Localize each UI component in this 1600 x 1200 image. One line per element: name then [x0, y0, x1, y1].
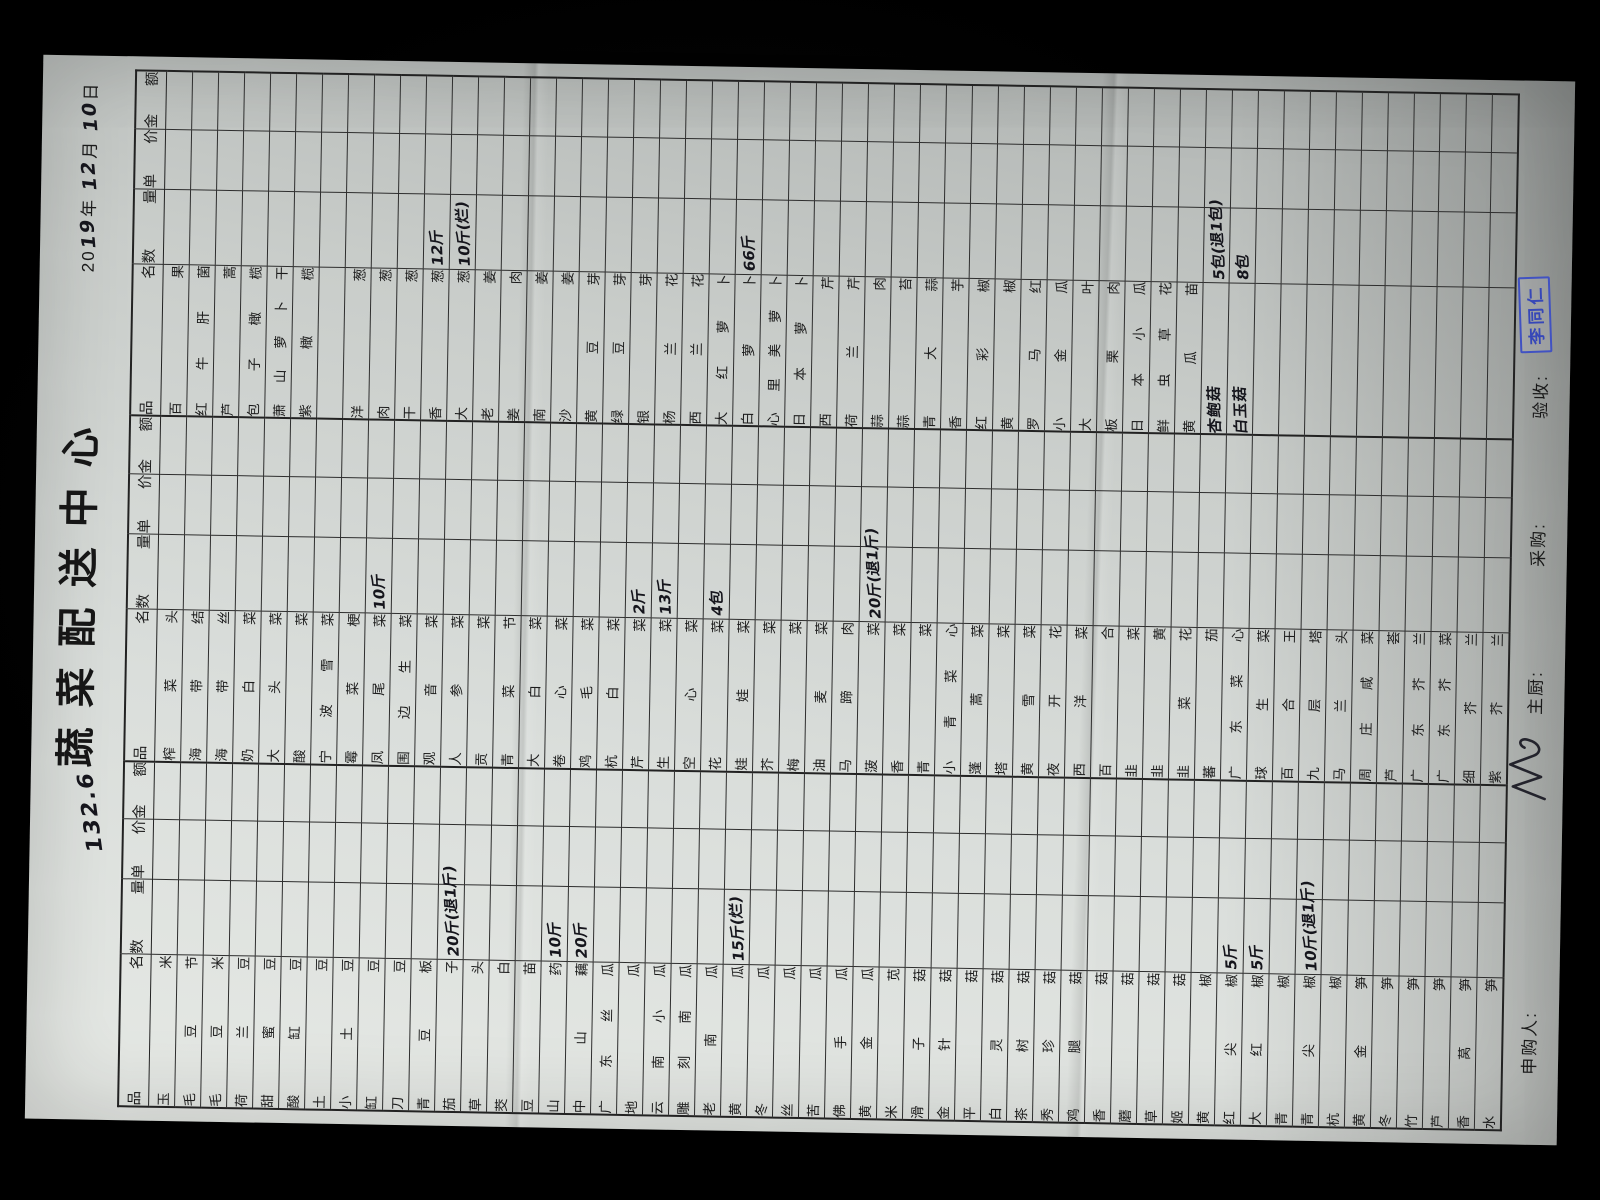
- item-name-cell: 球生菜: [1246, 628, 1275, 781]
- amount-cell: [492, 767, 519, 825]
- unit-price-cell: [776, 830, 803, 890]
- quantity-cell: [209, 535, 236, 611]
- amount-cell: [394, 420, 421, 478]
- quantity-cell: [827, 891, 854, 967]
- item-name-cell: 芦荟: [1376, 631, 1405, 784]
- amount-cell: [348, 74, 375, 133]
- amount-cell: [400, 75, 427, 134]
- handwritten-quantity: 20斤: [569, 921, 592, 960]
- item-name-cell: 贡菜: [467, 615, 496, 768]
- item-name-cell: 蓬蒿菜: [960, 623, 989, 776]
- item-name-cell: 蒜苔: [888, 277, 917, 430]
- quantity-cell: [1139, 897, 1166, 973]
- unit-price-cell: [912, 487, 939, 547]
- amount-cell: [258, 763, 285, 821]
- quantity-cell: [1061, 895, 1088, 971]
- quantity-cell: [1431, 557, 1458, 633]
- item-name-cell: 萧山萝卜干: [265, 266, 294, 419]
- unit-price-cell: [1048, 144, 1075, 204]
- quantity-cell: 10斤: [541, 886, 568, 962]
- amount-cell: [556, 78, 583, 137]
- unit-price-cell: [496, 480, 523, 540]
- item-name-cell: 佛手瓜: [824, 966, 853, 1119]
- item-name-cell: 香菜: [882, 622, 911, 775]
- handwritten-quantity: 10斤(烂): [451, 200, 475, 268]
- item-name-cell: 海带结: [181, 610, 210, 763]
- amount-cell: [706, 426, 733, 484]
- unit-price-cell: [1068, 490, 1095, 550]
- quantity-cell: [553, 196, 580, 272]
- quantity-cell: [729, 544, 756, 620]
- unit-price-cell: [704, 484, 731, 544]
- quantity-cell: [1451, 902, 1478, 978]
- quantity-cell: [1399, 901, 1426, 977]
- item-name-cell: 茶树菇: [1006, 970, 1035, 1123]
- form-date: 2019年 12月 10日: [74, 81, 102, 272]
- handwritten-quantity: 2斤: [627, 587, 649, 615]
- item-name-cell: 冬瓜: [746, 965, 775, 1118]
- unit-price-cell: [555, 136, 582, 196]
- item-name-cell: 黄金瓜: [850, 967, 879, 1120]
- amount-cell: [1101, 87, 1128, 146]
- amount-cell: [1479, 785, 1507, 844]
- item-name-cell: 鸡毛菜: [571, 617, 600, 770]
- amount-cell: [1115, 778, 1142, 836]
- item-name-cell: 小青菜心: [934, 623, 963, 776]
- item-name-cell: 甜蜜豆: [253, 956, 282, 1109]
- item-name-cell: 蕃茄: [1194, 627, 1223, 780]
- amount-cell: [570, 769, 597, 827]
- unit-price-cell: [659, 138, 686, 198]
- amount-cell: [725, 771, 752, 829]
- quantity-cell: [593, 887, 620, 963]
- unit-price-cell: [581, 136, 608, 196]
- item-name-cell: 肉葱: [369, 268, 398, 421]
- amount-cell: [374, 74, 401, 133]
- item-name-cell: 细芥兰: [1454, 632, 1483, 785]
- item-name-cell: 荷兰豆: [227, 956, 256, 1109]
- quantity-cell: [183, 535, 210, 611]
- quantity-cell: [1385, 210, 1412, 286]
- unit-price-cell: [373, 133, 400, 193]
- amount-cell: [596, 769, 623, 827]
- quantity-cell: [1425, 902, 1452, 978]
- item-name-cell: 紫橄榄: [291, 266, 320, 419]
- item-name-cell: 大葱: [447, 269, 476, 422]
- unit-price-cell: [1386, 150, 1413, 210]
- amount-cell: [310, 764, 337, 822]
- quantity-cell: [1379, 556, 1406, 632]
- quantity-cell: 10斤(烂): [449, 194, 476, 270]
- unit-price-cell: [880, 832, 907, 892]
- quantity-cell: [1353, 555, 1380, 631]
- item-name-cell: 红牛肝菌: [187, 265, 216, 418]
- item-name-cell: 香菇: [1084, 971, 1113, 1124]
- unit-price-cell: [1178, 147, 1205, 207]
- quantity-cell: [983, 894, 1010, 970]
- item-name-cell: 马蹄肉: [830, 621, 859, 774]
- item-name-cell: [1252, 283, 1281, 436]
- unit-price-cell: [367, 478, 394, 538]
- date-year-unit: 年: [80, 198, 99, 217]
- amount-cell: [1401, 783, 1428, 841]
- unit-price-cell: [1074, 145, 1101, 205]
- amount-cell: [1049, 86, 1076, 145]
- quantity-cell: [671, 889, 698, 965]
- quantity-cell: [1223, 553, 1250, 629]
- unit-price-cell: [412, 824, 439, 884]
- unit-price-cell: [710, 139, 737, 199]
- amount-cell: [1069, 432, 1096, 490]
- quantity-cell: 12斤: [423, 194, 450, 270]
- item-name-cell: 韭菜花: [1168, 627, 1197, 780]
- quantity-cell: [891, 202, 918, 278]
- item-name-cell: 大红椒: [1240, 974, 1269, 1127]
- item-name-cell: [317, 267, 346, 420]
- unit-price-cell: [1022, 144, 1049, 204]
- quantity-cell: [1463, 212, 1490, 288]
- chef-label: 主厨:: [1521, 670, 1547, 715]
- item-name-cell: 板栗肉: [1096, 280, 1125, 433]
- unit-price-cell: [1140, 837, 1167, 897]
- amount-cell: [1173, 434, 1200, 492]
- unit-price-cell: [1062, 835, 1089, 895]
- amount-cell: [1387, 92, 1414, 151]
- amount-cell: [790, 82, 817, 141]
- item-name-cell: 鲜虫草花: [1148, 281, 1177, 434]
- item-name-cell: 土豆: [305, 957, 334, 1110]
- amount-cell: [368, 420, 395, 478]
- unit-price-cell: [736, 139, 763, 199]
- quantity-cell: [957, 894, 984, 970]
- quantity-cell: 10斤: [365, 538, 392, 614]
- quantity-cell: [463, 885, 490, 961]
- quantity-cell: [1333, 209, 1360, 285]
- item-name-cell: 凤尾菜: [363, 613, 392, 766]
- unit-price-cell: [289, 477, 316, 537]
- handwritten-item-name: 白玉菇: [1229, 385, 1252, 436]
- unit-price-cell: [1426, 842, 1453, 902]
- col-header-name: 品 名: [124, 609, 157, 762]
- unit-price-cell: [263, 476, 290, 536]
- quantity-cell: [515, 886, 542, 962]
- item-name-cell: [1408, 286, 1437, 439]
- unit-price-cell: [1464, 152, 1491, 212]
- quantity-cell: [177, 880, 204, 956]
- amount-cell: [673, 771, 700, 829]
- amount-cell: [861, 428, 888, 486]
- item-name-cell: 百果: [161, 264, 190, 417]
- unit-price-cell: [1348, 840, 1375, 900]
- amount-cell: [1075, 87, 1102, 146]
- quantity-cell: [547, 541, 574, 617]
- amount-cell: [972, 85, 999, 144]
- quantity-cell: [761, 199, 788, 275]
- quantity-cell: 20斤(退1斤): [437, 885, 464, 961]
- unit-price-cell: [522, 481, 549, 541]
- unit-price-cell: [360, 823, 387, 883]
- amount-cell: [946, 84, 973, 143]
- item-name-cell: 黄豆芽: [577, 271, 606, 424]
- handwritten-quantity: 5斤: [1219, 943, 1241, 971]
- quantity-cell: [333, 883, 360, 959]
- amount-cell: [284, 764, 311, 822]
- quantity-cell: 15斤(烂): [723, 890, 750, 966]
- handwritten-quantity: 10斤: [367, 572, 390, 611]
- unit-price-cell: [1406, 496, 1433, 556]
- amount-cell: [939, 430, 966, 488]
- quantity-cell: [787, 200, 814, 276]
- unit-price-cell: [568, 827, 595, 887]
- quantity-cell: [1047, 204, 1074, 280]
- item-name-cell: 黄瓜苗: [1174, 282, 1203, 435]
- amount-cell: [732, 426, 759, 484]
- photo-canvas: { "page": { "title": "蔬菜配送中心", "date": {…: [0, 0, 1600, 1200]
- item-name-cell: 海带丝: [207, 610, 236, 763]
- quantity-cell: [443, 539, 470, 615]
- unit-price-cell: [1120, 491, 1147, 551]
- amount-cell: [997, 85, 1024, 144]
- amount-cell: [1179, 89, 1206, 148]
- quantity-cell: [989, 549, 1016, 625]
- quantity-cell: [339, 537, 366, 613]
- amount-cell: [894, 84, 921, 143]
- unit-price-cell: [1224, 493, 1251, 553]
- item-name-cell: 西芹: [811, 275, 840, 428]
- unit-price-cell: [1114, 836, 1141, 896]
- item-name-cell: 空心菜: [675, 618, 704, 771]
- item-name-cell: 冬笋: [1370, 976, 1399, 1129]
- amount-cell: [777, 772, 804, 830]
- unit-price-cell: [944, 143, 971, 203]
- amount-cell: [907, 775, 934, 833]
- amount-cell: [244, 72, 271, 131]
- item-name-cell: 人参菜: [441, 614, 470, 767]
- quantity-cell: [385, 884, 412, 960]
- amount-cell: [784, 427, 811, 485]
- unit-price-cell: [672, 829, 699, 889]
- quantity-cell: [1489, 212, 1517, 288]
- item-name-cell: 云南小瓜: [642, 963, 671, 1116]
- amount-cell: [160, 416, 187, 474]
- unit-price-cell: [814, 140, 841, 200]
- amount-cell: [296, 73, 323, 132]
- quantity-cell: [833, 546, 860, 622]
- receiver-stamp: 李同仁: [1518, 276, 1553, 353]
- item-name-cell: 红尖椒: [1214, 973, 1243, 1126]
- quantity-cell: [1177, 207, 1204, 283]
- amount-cell: [478, 76, 505, 135]
- unit-price-cell: [425, 134, 452, 194]
- col-header-qty: 数量: [133, 189, 165, 265]
- unit-price-cell: [503, 135, 530, 195]
- amount-cell: [803, 773, 830, 831]
- amount-cell: [1121, 433, 1148, 491]
- amount-cell: [1465, 94, 1492, 153]
- item-name-cell: 青椒: [1266, 974, 1295, 1127]
- item-name-cell: 黄雪菜: [1012, 624, 1041, 777]
- handwritten-quantity: 12斤: [425, 228, 448, 267]
- unit-price-cell: [1322, 840, 1349, 900]
- item-name-cell: 玉米: [149, 955, 178, 1108]
- quantity-cell: [943, 203, 970, 279]
- unit-price-cell: [1146, 492, 1173, 552]
- item-name-cell: 蘑菇: [1110, 971, 1139, 1124]
- amount-cell: [868, 83, 895, 142]
- amount-cell: [192, 71, 219, 130]
- unit-price-cell: [802, 831, 829, 891]
- amount-cell: [414, 766, 441, 824]
- amount-cell: [1037, 777, 1064, 835]
- handwritten-quantity: 5包(退1包): [1204, 198, 1229, 281]
- date-year-handwritten: 19: [76, 216, 100, 250]
- amount-cell: [1205, 89, 1232, 148]
- item-name-cell: 杏鲍菇: [1200, 282, 1229, 435]
- unit-price-cell: [1308, 149, 1335, 209]
- quantity-cell: [749, 890, 776, 966]
- item-name-cell: 西洋菜: [1064, 625, 1093, 778]
- amount-cell: [1141, 779, 1168, 837]
- amount-cell: [965, 430, 992, 488]
- unit-price-cell: [892, 142, 919, 202]
- quantity-cell: [359, 883, 386, 959]
- amount-cell: [634, 79, 661, 138]
- unit-price-cell: [684, 138, 711, 198]
- item-name-cell: 姬菇: [1162, 972, 1191, 1125]
- unit-price-cell: [1478, 843, 1506, 904]
- quantity-cell: [319, 192, 346, 268]
- quantity-cell: 5斤: [1243, 899, 1270, 975]
- unit-price-cell: [1432, 496, 1459, 556]
- quantity-cell: [501, 195, 528, 271]
- quantity-cell: [489, 885, 516, 961]
- quantity-cell: [255, 881, 282, 957]
- unit-price-cell: [243, 130, 270, 190]
- date-day-handwritten: 10: [78, 100, 102, 134]
- item-name-cell: 青菜节: [493, 615, 522, 768]
- quantity-cell: [1327, 555, 1354, 631]
- amount-cell: [544, 768, 571, 826]
- item-name-cell: 广东丝瓜: [590, 962, 619, 1115]
- amount-cell: [1439, 93, 1466, 152]
- unit-price-cell: [1126, 146, 1153, 206]
- item-name-cell: 杭椒: [1318, 975, 1347, 1128]
- amount-cell: [518, 768, 545, 826]
- unit-price-cell: [237, 476, 264, 536]
- handwritten-quantity: 4包: [705, 589, 727, 617]
- amount-cell: [1459, 439, 1486, 497]
- quantity-cell: [937, 548, 964, 624]
- amount-cell: [991, 431, 1018, 489]
- unit-price-cell: [477, 134, 504, 194]
- item-name-cell: 青豆板: [409, 959, 438, 1112]
- unit-price-cell: [1360, 150, 1387, 210]
- item-name-cell: 花菜: [701, 619, 730, 772]
- item-name-cell: 九层塔: [1298, 629, 1327, 782]
- amount-cell: [1225, 435, 1252, 493]
- quantity-cell: [1073, 205, 1100, 281]
- amount-cell: [336, 765, 363, 823]
- col-header-price: 单价: [134, 128, 166, 189]
- item-name-cell: 周庄咸菜: [1350, 630, 1379, 783]
- amount-cell: [1407, 438, 1434, 496]
- item-name-cell: 豆苗: [513, 961, 542, 1114]
- quantity-cell: [241, 190, 268, 266]
- unit-price-cell: [1094, 491, 1121, 551]
- quantity-cell: [163, 189, 190, 265]
- unit-price-cell: [1042, 490, 1069, 550]
- quantity-cell: [1093, 551, 1120, 627]
- unit-price-cell: [834, 486, 861, 546]
- quantity-cell: [1151, 206, 1178, 282]
- quantity-cell: [657, 198, 684, 274]
- quantity-cell: [1477, 903, 1505, 979]
- quantity-cell: [813, 200, 840, 276]
- item-name-cell: [1278, 284, 1307, 437]
- item-name-cell: 大头菜: [259, 611, 288, 764]
- item-name-cell: 竹笋: [1396, 976, 1425, 1129]
- unit-price-cell: [782, 485, 809, 545]
- amount-cell: [1277, 436, 1304, 494]
- amount-cell: [1023, 86, 1050, 145]
- amount-cell: [1381, 438, 1408, 496]
- quantity-cell: [755, 545, 782, 621]
- amount-cell: [322, 74, 349, 133]
- unit-price-cell: [762, 139, 789, 199]
- amount-cell: [1427, 784, 1454, 842]
- handwritten-item-name: 杏鲍菇: [1203, 384, 1226, 435]
- amount-cell: [628, 424, 655, 482]
- quantity-cell: 8包: [1229, 208, 1256, 284]
- amount-cell: [1303, 436, 1330, 494]
- unit-price-cell: [970, 143, 997, 203]
- unit-price-cell: [607, 137, 634, 197]
- item-name-cell: 米苋: [876, 967, 905, 1120]
- amount-cell: [1167, 779, 1194, 837]
- quantity-cell: [905, 893, 932, 969]
- item-name-cell: 金针菇: [928, 968, 957, 1121]
- quantity-cell: [775, 890, 802, 966]
- quantity-cell: 4包: [703, 544, 730, 620]
- unit-price-cell: [516, 826, 543, 886]
- unit-price-cell: [652, 483, 679, 543]
- item-name-cell: 丝瓜: [772, 965, 801, 1118]
- item-name-cell: 酸菜: [285, 612, 314, 765]
- unit-price-cell: [445, 479, 472, 539]
- amount-cell: [452, 76, 479, 135]
- amount-cell: [660, 79, 687, 138]
- item-name-cell: 茭白: [487, 960, 516, 1113]
- quantity-cell: [1165, 897, 1192, 973]
- amount-cell: [855, 774, 882, 832]
- item-name-cell: 南姜: [525, 270, 554, 423]
- amount-cell: [1323, 782, 1350, 840]
- item-name-cell: 黄金笋: [1344, 975, 1373, 1128]
- item-name-cell: 黄椒: [1188, 973, 1217, 1126]
- amount-cell: [1153, 88, 1180, 147]
- unit-price-cell: [341, 477, 368, 537]
- col-header-price: 单价: [122, 819, 154, 880]
- amount-cell: [362, 765, 389, 823]
- item-name-cell: 老南瓜: [694, 964, 723, 1117]
- unit-price-cell: [1244, 839, 1271, 899]
- item-name-cell: 红彩椒: [966, 278, 995, 431]
- unit-price-cell: [393, 478, 420, 538]
- item-name-cell: 杭白菜: [597, 617, 626, 770]
- item-name-cell: 百合王: [1272, 629, 1301, 782]
- quantity-cell: 20斤: [567, 887, 594, 963]
- unit-price-cell: [698, 829, 725, 889]
